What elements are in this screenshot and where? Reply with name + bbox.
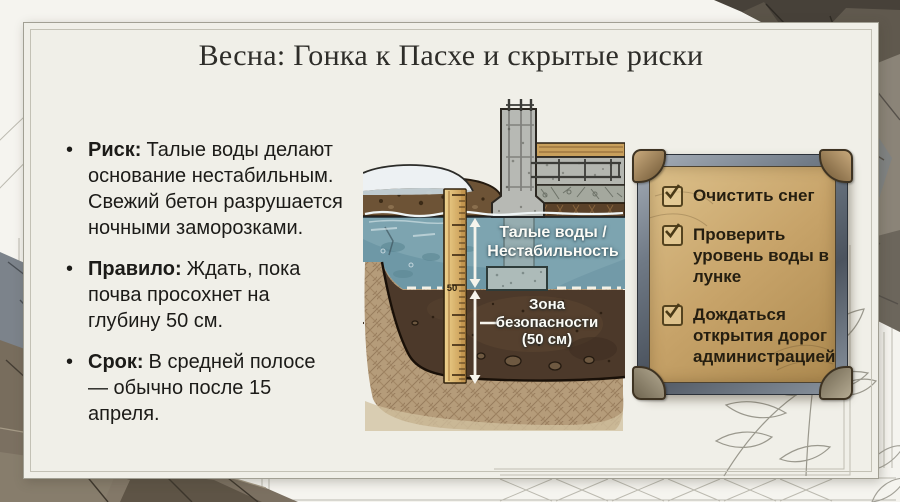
checkmark-icon: [665, 304, 680, 317]
bullet-list: • Риск:Талые воды делают основание неста…: [66, 137, 376, 442]
safety-zone-label: Зона безопасности (50 см): [489, 296, 605, 349]
bullet-label: Правило:: [88, 258, 182, 280]
slide: Весна: Гонка к Пасхе и скрытые риски • Р…: [0, 0, 900, 502]
checklist-plaque: Очистить снег Проверить уровень воды в л…: [637, 154, 848, 395]
slide-card: Весна: Гонка к Пасхе и скрытые риски • Р…: [23, 22, 879, 479]
checkmark-icon: [665, 224, 680, 237]
page-title: Весна: Гонка к Пасхе и скрытые риски: [24, 39, 878, 73]
checkmark-icon: [665, 185, 680, 198]
bullet-label: Риск:: [88, 139, 141, 161]
water-layer-label: Талые воды / Нестабильность: [481, 223, 625, 261]
bullet-dot: •: [66, 256, 88, 334]
checklist-item-label: Проверить уровень воды в лунке: [693, 224, 835, 287]
bullet-item-rule: • Правило:Ждать, пока почва просохнет на…: [66, 256, 376, 334]
checklist-item: Дождаться открытия дорог администрацией: [662, 304, 839, 367]
bullet-dot: •: [66, 349, 88, 427]
checklist-checkbox[interactable]: [662, 225, 683, 246]
checklist: Очистить снег Проверить уровень воды в л…: [662, 185, 839, 384]
ruler-50-mark: 50: [443, 283, 461, 294]
bullet-item-risk: • Риск:Талые воды делают основание неста…: [66, 137, 376, 241]
bullet-dot: •: [66, 137, 88, 241]
checklist-item-label: Дождаться открытия дорог администрацией: [693, 304, 835, 367]
soil-cross-section-diagram: Талые воды / Нестабильность Зона безопас…: [363, 99, 625, 433]
bullet-item-deadline: • Срок:В средней полосе — обычно после 1…: [66, 349, 376, 427]
checklist-checkbox[interactable]: [662, 305, 683, 326]
checklist-item-label: Очистить снег: [693, 185, 835, 207]
checklist-item: Очистить снег: [662, 185, 839, 207]
checklist-checkbox[interactable]: [662, 186, 683, 207]
bullet-label: Срок:: [88, 351, 144, 373]
checklist-item: Проверить уровень воды в лунке: [662, 224, 839, 287]
